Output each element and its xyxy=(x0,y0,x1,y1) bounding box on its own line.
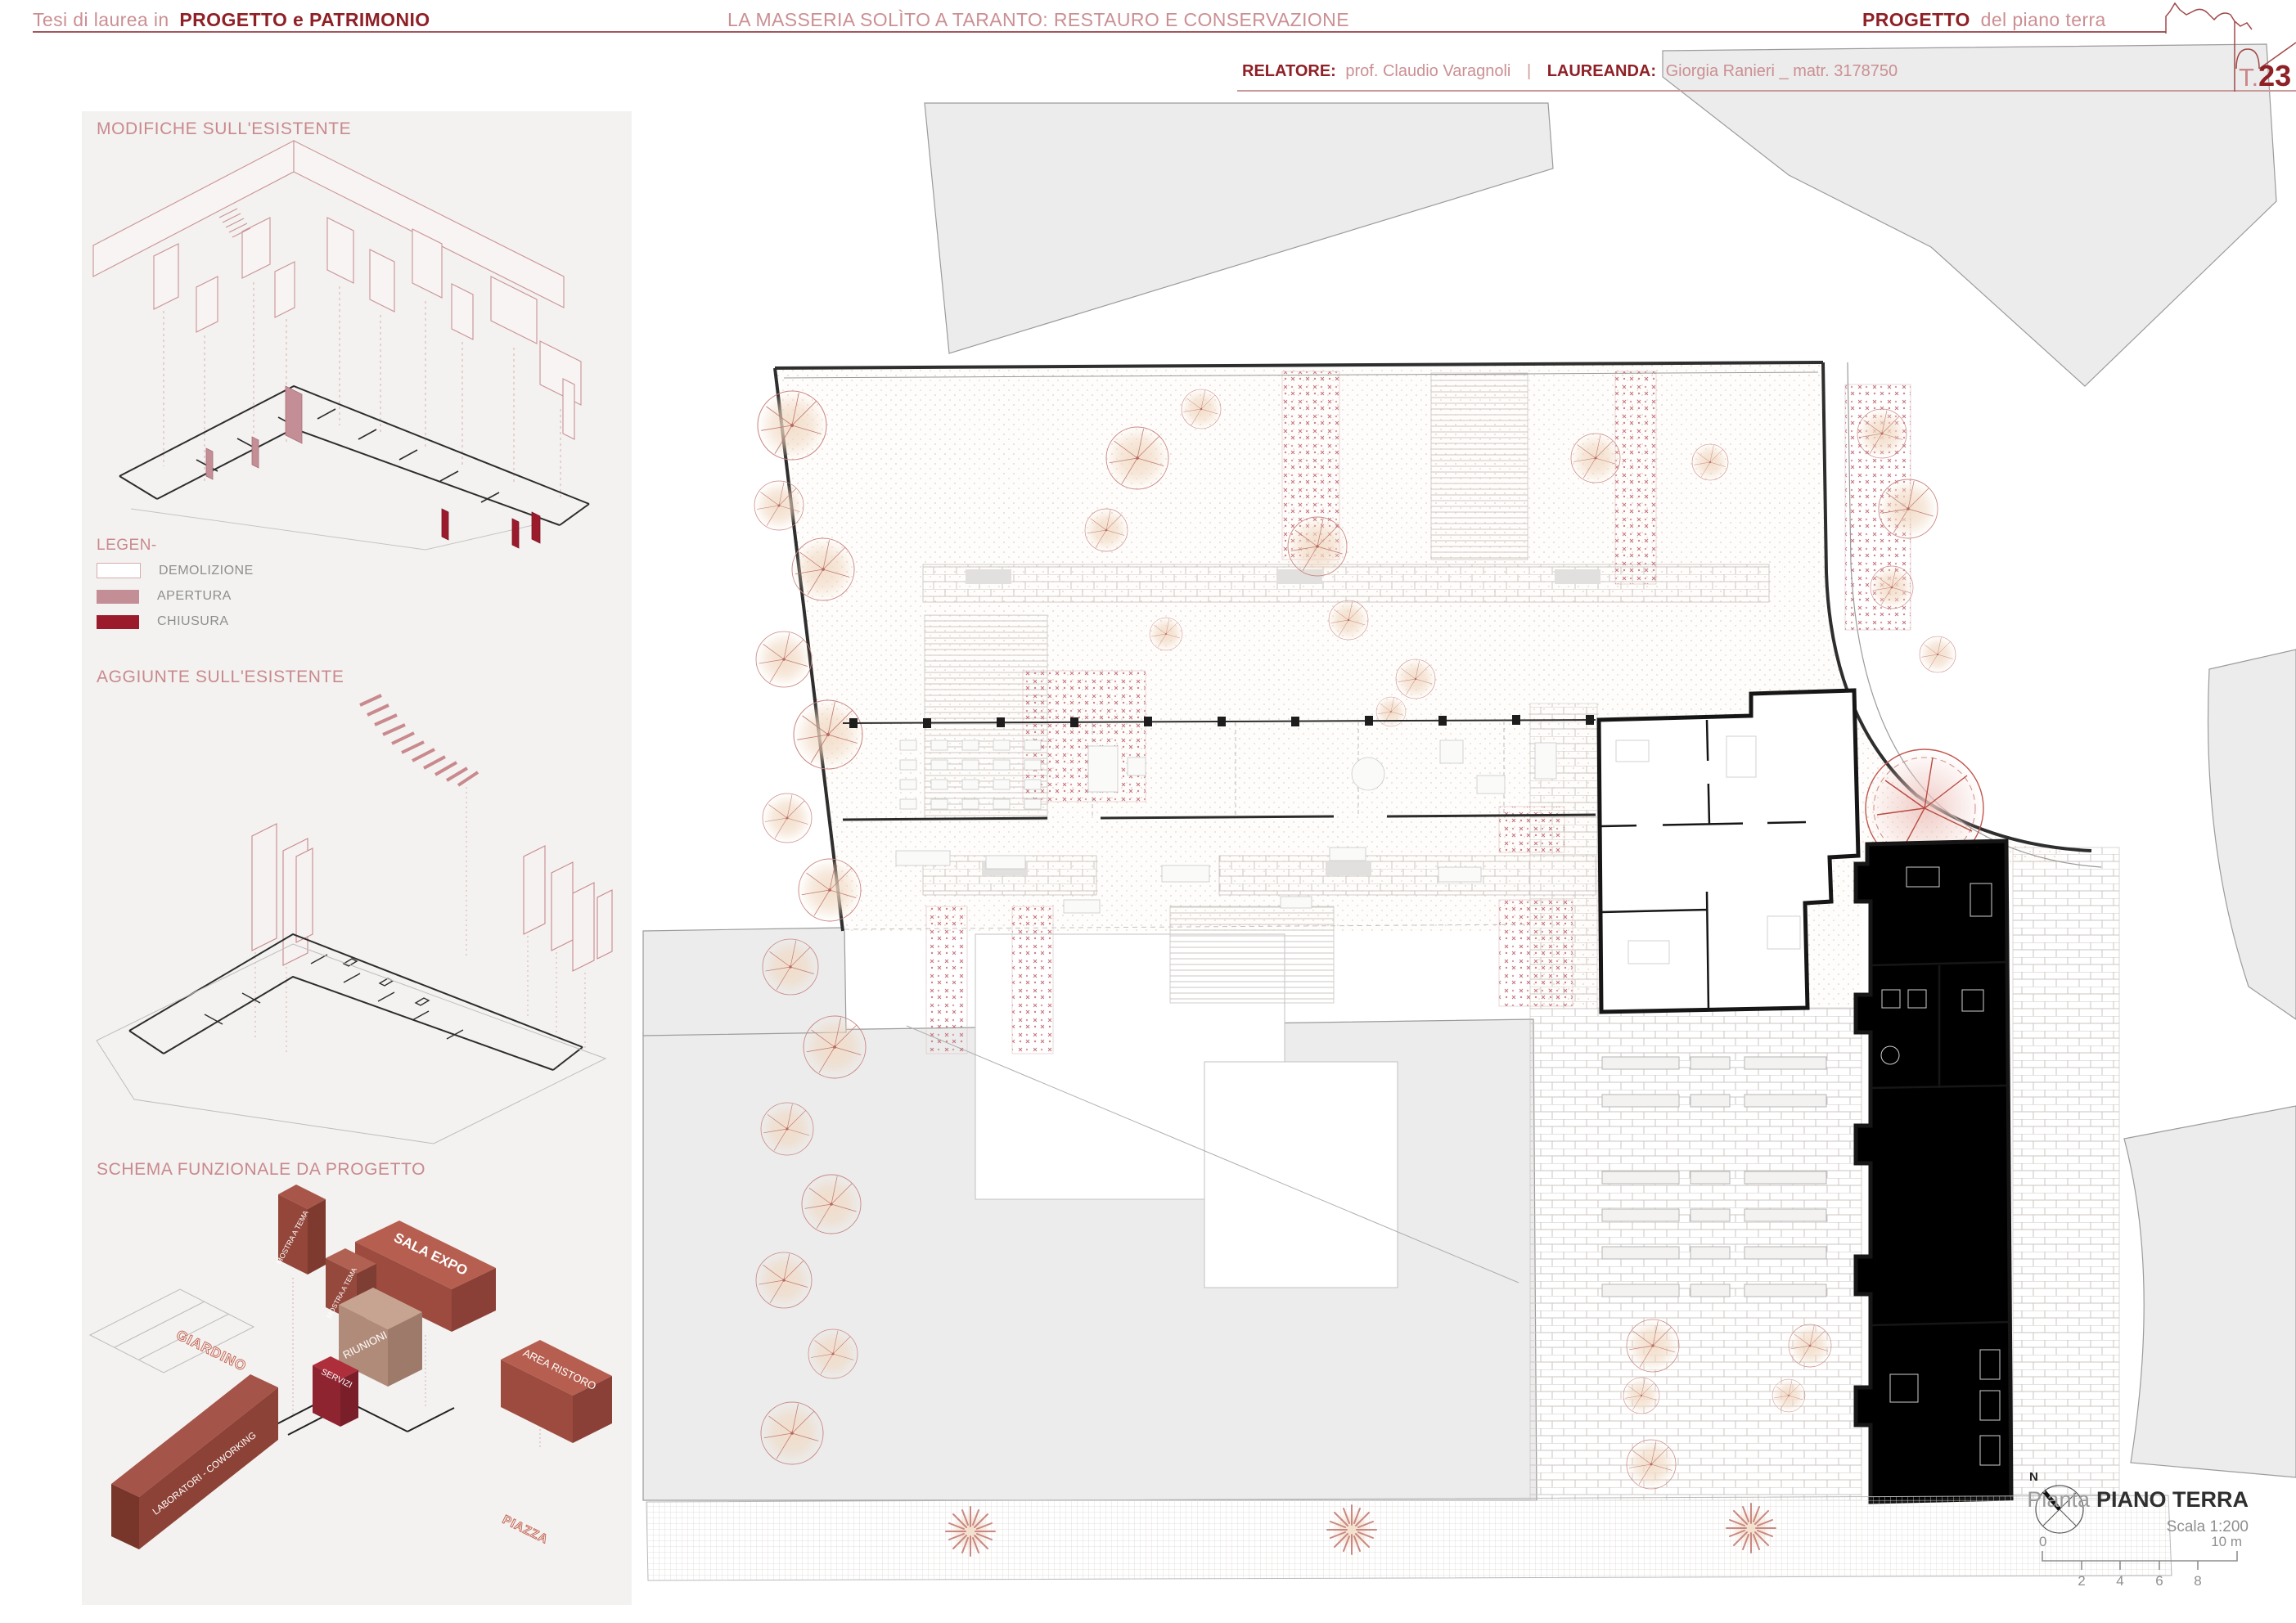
header-rule xyxy=(33,31,2166,33)
legend-item-apertura: APERTURA xyxy=(97,589,254,604)
piazza-label: PIAZZA xyxy=(500,1513,551,1547)
plan-scale: Scala 1:200 xyxy=(2167,1518,2249,1535)
giardino-label: GIARDINO xyxy=(173,1327,249,1374)
existing-walls xyxy=(93,141,581,439)
relatore-name: prof. Claudio Varagnoli xyxy=(1345,62,1510,80)
course-title: PROGETTO e PATRIMONIO xyxy=(179,9,430,30)
plan-caption-title: PIANO TERRA xyxy=(2096,1487,2249,1512)
thesis-board: N PiantaPIANO TERRA Scala 1:200 0 10 m 2… xyxy=(0,0,2296,1623)
legend: LEGEN- DEMOLIZIONE APERTURA CHIUSURA xyxy=(97,537,254,640)
apertura-swatch xyxy=(97,590,139,604)
schema-axon-diagram: MOSTRA A TEMA SALA EXPO MOSTRA A TEMA xyxy=(82,1180,632,1602)
plan-fragments xyxy=(275,1394,454,1435)
legend-label: DEMOLIZIONE xyxy=(159,564,254,578)
schema-title: SCHEMA FUNZIONALE DA PROGETTO xyxy=(97,1160,425,1180)
existing-plan xyxy=(119,386,589,525)
laureanda-label: LAUREANDA: xyxy=(1547,62,1656,80)
chiusura-blocks xyxy=(442,509,540,548)
aggiunte-title: AGGIUNTE SULL'ESISTENTE xyxy=(97,668,344,687)
block-laboratori: LABORATORI - COWORKING xyxy=(111,1374,278,1549)
aggiunte-axon-diagram xyxy=(82,689,632,1147)
block-area-ristoro: AREA RISTORO xyxy=(501,1340,612,1443)
authors-separator: | xyxy=(1527,62,1531,80)
existing-plan-2 xyxy=(129,934,583,1070)
legend-item-chiusura: CHIUSURA xyxy=(97,614,254,629)
svg-text:10 m: 10 m xyxy=(2211,1534,2242,1549)
demolizione-swatch xyxy=(97,563,141,578)
relatore-label: RELATORE: xyxy=(1242,62,1336,80)
north-label: N xyxy=(2029,1470,2038,1484)
block-mostra-back: MOSTRA A TEMA xyxy=(275,1185,326,1275)
ground-outline-2 xyxy=(97,944,606,1144)
legend-item-demolizione: DEMOLIZIONE xyxy=(97,563,254,578)
sidewalk xyxy=(646,1495,2172,1580)
legend-title: LEGEN- xyxy=(97,537,254,555)
svg-text:2: 2 xyxy=(2078,1573,2085,1589)
modifiche-title: MODIFICHE SULL'ESISTENTE xyxy=(97,119,351,139)
sheet-code-number: 23 xyxy=(2258,59,2291,92)
chiusura-swatch xyxy=(97,615,139,629)
right-wing-building xyxy=(1856,841,2011,1502)
svg-text:8: 8 xyxy=(2194,1573,2201,1589)
svg-text:4: 4 xyxy=(2116,1573,2123,1589)
block-servizi: SERVIZI xyxy=(313,1356,358,1427)
sheet-code: T.23 xyxy=(2239,59,2291,93)
laureanda-name: Giorgia Ranieri _ matr. 3178750 xyxy=(1666,62,1898,80)
addition-stair-hatch xyxy=(360,695,478,785)
sheet-subject: PROGETTO del piano terra xyxy=(1862,9,2106,31)
sheet-subject-bold: PROGETTO xyxy=(1862,9,1970,30)
plan-caption-prefix: Pianta xyxy=(2027,1487,2091,1512)
modifiche-axon-diagram xyxy=(82,139,632,553)
svg-text:6: 6 xyxy=(2155,1573,2163,1589)
authors-row: RELATORE: prof. Claudio Varagnoli | LAUR… xyxy=(1242,62,1898,81)
project-title: LA MASSERIA SOLÌTO A TARANTO: RESTAURO E… xyxy=(727,9,1349,31)
sheet-subject-rest: del piano terra xyxy=(1981,9,2106,30)
svg-text:0: 0 xyxy=(2039,1534,2046,1549)
course-heading: Tesi di laurea in PROGETTO e PATRIMONIO xyxy=(33,9,430,31)
plan-caption: PiantaPIANO TERRA xyxy=(2027,1487,2249,1512)
course-prefix: Tesi di laurea in xyxy=(33,9,169,30)
legend-label: CHIUSURA xyxy=(157,614,229,629)
legend-label: APERTURA xyxy=(157,589,232,604)
sidebar-panel: MODIFICHE SULL'ESISTENTE xyxy=(82,111,632,1605)
sheet-code-prefix: T. xyxy=(2239,63,2258,92)
